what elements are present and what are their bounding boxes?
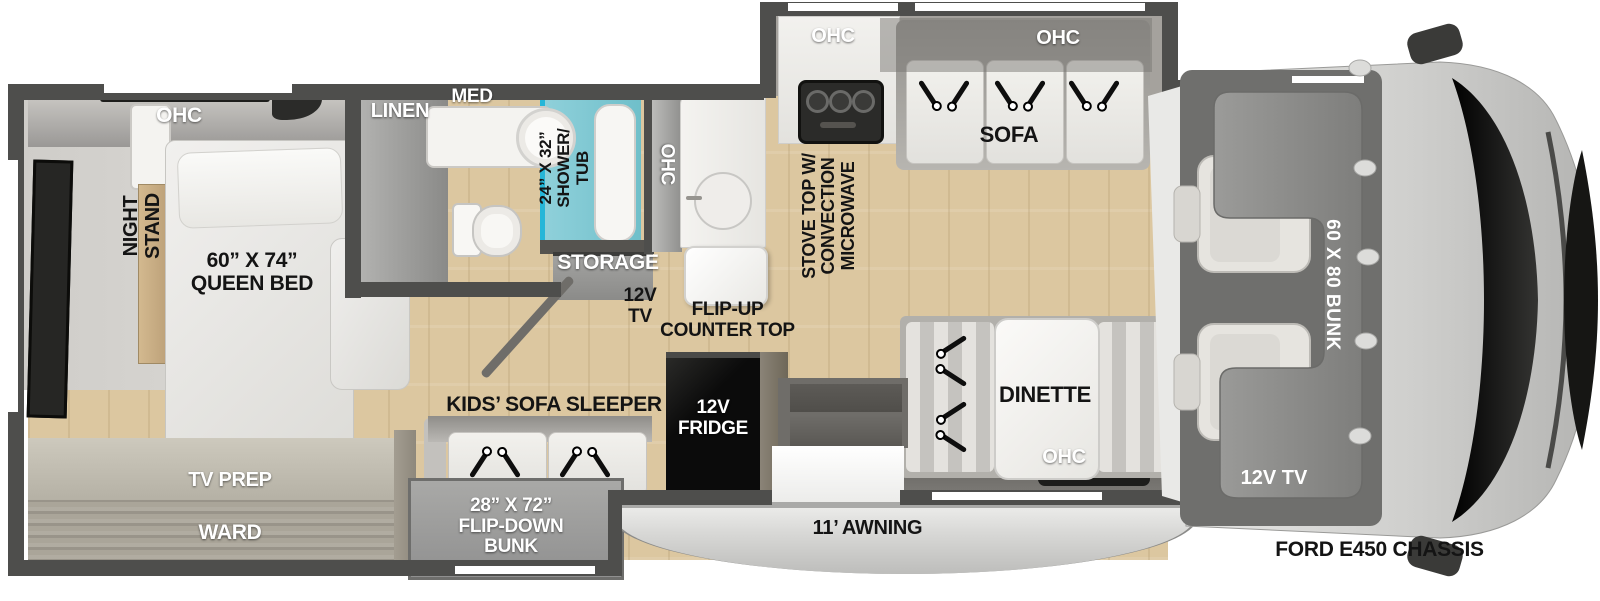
clearance-light xyxy=(1349,60,1371,76)
window-flip-bunk xyxy=(455,566,595,574)
cab-seat-passenger-armrest xyxy=(1174,186,1200,242)
stove-controls xyxy=(820,122,856,128)
ward-label: WARD xyxy=(150,522,310,545)
window-slideout-top-1 xyxy=(788,3,898,11)
shower-tub-label: 24” X 32” SHOWER/ TUB xyxy=(537,109,611,227)
clearance-light xyxy=(1357,249,1379,265)
window-slideout-top-2 xyxy=(915,3,1145,11)
clearance-light xyxy=(1354,160,1376,176)
kitchen-round-sink xyxy=(694,172,752,230)
linen-label: LINEN xyxy=(362,101,438,123)
window-bottom-right xyxy=(932,492,1102,500)
kitchen-ohc-side-label: OHC xyxy=(656,134,677,194)
overcab-bunk-label: 60 X 80 BUNK xyxy=(1322,219,1343,351)
wall-bathroom-bottom xyxy=(345,282,561,297)
wall-bathroom-left xyxy=(345,95,361,298)
storage-label: STORAGE xyxy=(554,252,662,275)
window-bedroom-left xyxy=(8,160,18,412)
rv-floorplan: 60 X 80 BUNK 12V TV OHC NIGHT STAND 60” … xyxy=(0,0,1600,601)
dinette-label: DINETTE xyxy=(998,383,1092,407)
stove-burner-2 xyxy=(829,90,852,113)
entry-threshold xyxy=(772,446,904,502)
queen-bed-label: 60” X 74” QUEEN BED xyxy=(172,250,332,295)
clearance-light xyxy=(1355,333,1377,349)
seatbelt-icon xyxy=(998,76,1042,114)
stove-burner-1 xyxy=(806,90,829,113)
cab-step-wedge xyxy=(1148,86,1182,502)
seatbelt-icon xyxy=(933,339,971,383)
sofa-ohc-label: OHC xyxy=(1028,28,1088,50)
dinette-ohc-label: OHC xyxy=(1034,447,1094,469)
wall-bottom-mid-left xyxy=(608,490,772,505)
flip-up-counter xyxy=(684,246,768,306)
kitchen-faucet xyxy=(686,196,702,200)
fridge-label: 12V FRIDGE xyxy=(664,398,762,439)
flip-up-counter-label: FLIP-UP COUNTER TOP xyxy=(645,300,810,341)
cab-tv-label: 12V TV xyxy=(1241,467,1308,489)
wall-slideout-left xyxy=(760,2,776,98)
entry-step-1 xyxy=(790,384,902,412)
awning-label: 11’ AWNING xyxy=(795,518,940,540)
flip-down-bunk-label: 28” X 72” FLIP-DOWN BUNK xyxy=(432,496,590,558)
mirror-top xyxy=(1405,21,1466,67)
chassis-label: FORD E450 CHASSIS xyxy=(1262,539,1497,562)
seatbelt-icon xyxy=(1072,76,1116,114)
clearance-light xyxy=(1349,428,1371,444)
bedroom-tv xyxy=(27,160,74,419)
cab-chassis-graphic: 60 X 80 BUNK 12V TV xyxy=(1140,0,1600,601)
cab-roofline-strip xyxy=(1292,76,1364,83)
seatbelt-icon xyxy=(563,444,607,482)
window-bedroom-top xyxy=(104,84,292,93)
kitchen-ohc-top-label: OHC xyxy=(802,26,864,48)
sofa-ohc-overlay xyxy=(880,18,1152,72)
night-stand-label: NIGHT STAND xyxy=(121,184,167,268)
sofa-label: SOFA xyxy=(970,123,1048,147)
toilet-bowl xyxy=(472,205,522,257)
cab-seat-driver-armrest xyxy=(1174,354,1200,410)
kids-sofa-label: KIDS’ SOFA SLEEPER xyxy=(440,394,668,417)
stove-burner-3 xyxy=(852,90,875,113)
seatbelt-icon xyxy=(922,76,966,114)
entry-step-2 xyxy=(790,416,902,446)
med-label: MED xyxy=(444,87,500,108)
seatbelt-icon xyxy=(473,444,517,482)
bed-pillow xyxy=(177,147,344,229)
stove-label: STOVE TOP W/ CONVECTION MICROWAVE xyxy=(800,140,868,292)
bedroom-ohc-label: OHC xyxy=(148,105,210,128)
seatbelt-icon xyxy=(933,405,971,449)
tv-prep-label: TV PREP xyxy=(150,470,310,492)
